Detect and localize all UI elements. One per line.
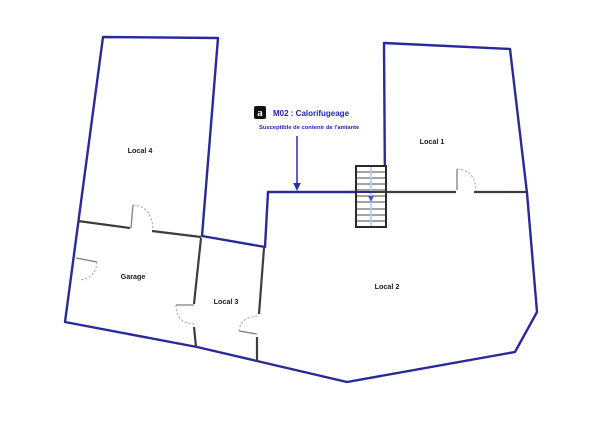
asbestos-a-icon-glyph: a [257,107,263,119]
room-label-garage: Garage [121,272,146,281]
room-label-local3: Local 3 [214,297,239,306]
annotation-subtitle: Susceptible de contenir de l'amiante [259,125,360,131]
room-label-local2: Local 2 [375,282,400,291]
staircase [356,166,386,227]
room-label-local4: Local 4 [128,146,153,155]
annotation-title: M02 : Calorifugeage [273,109,350,118]
room-label-local1: Local 1 [420,137,445,146]
floor-plan-canvas: Local 4 Local 1 Garage Local 3 Local 2 a… [0,0,600,424]
floor-plan-drawing: Local 4 Local 1 Garage Local 3 Local 2 a… [0,0,600,424]
